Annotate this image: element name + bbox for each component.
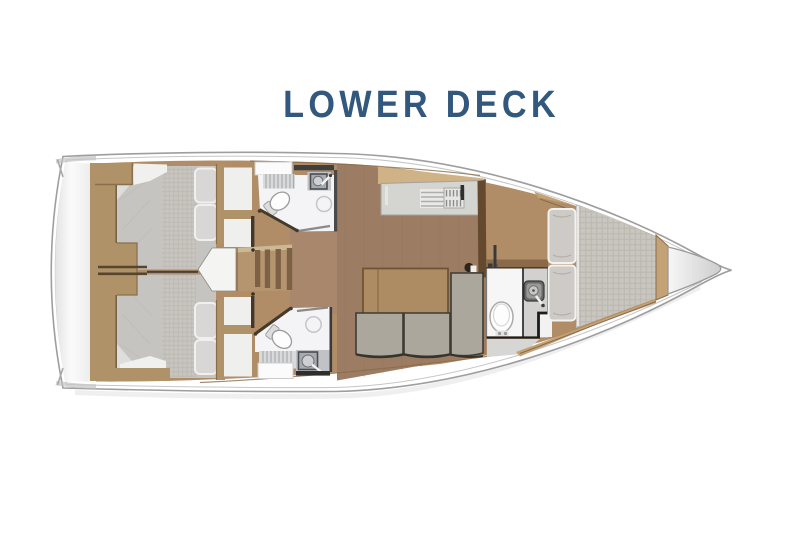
svg-text:LOWER DECK: LOWER DECK xyxy=(283,82,560,125)
